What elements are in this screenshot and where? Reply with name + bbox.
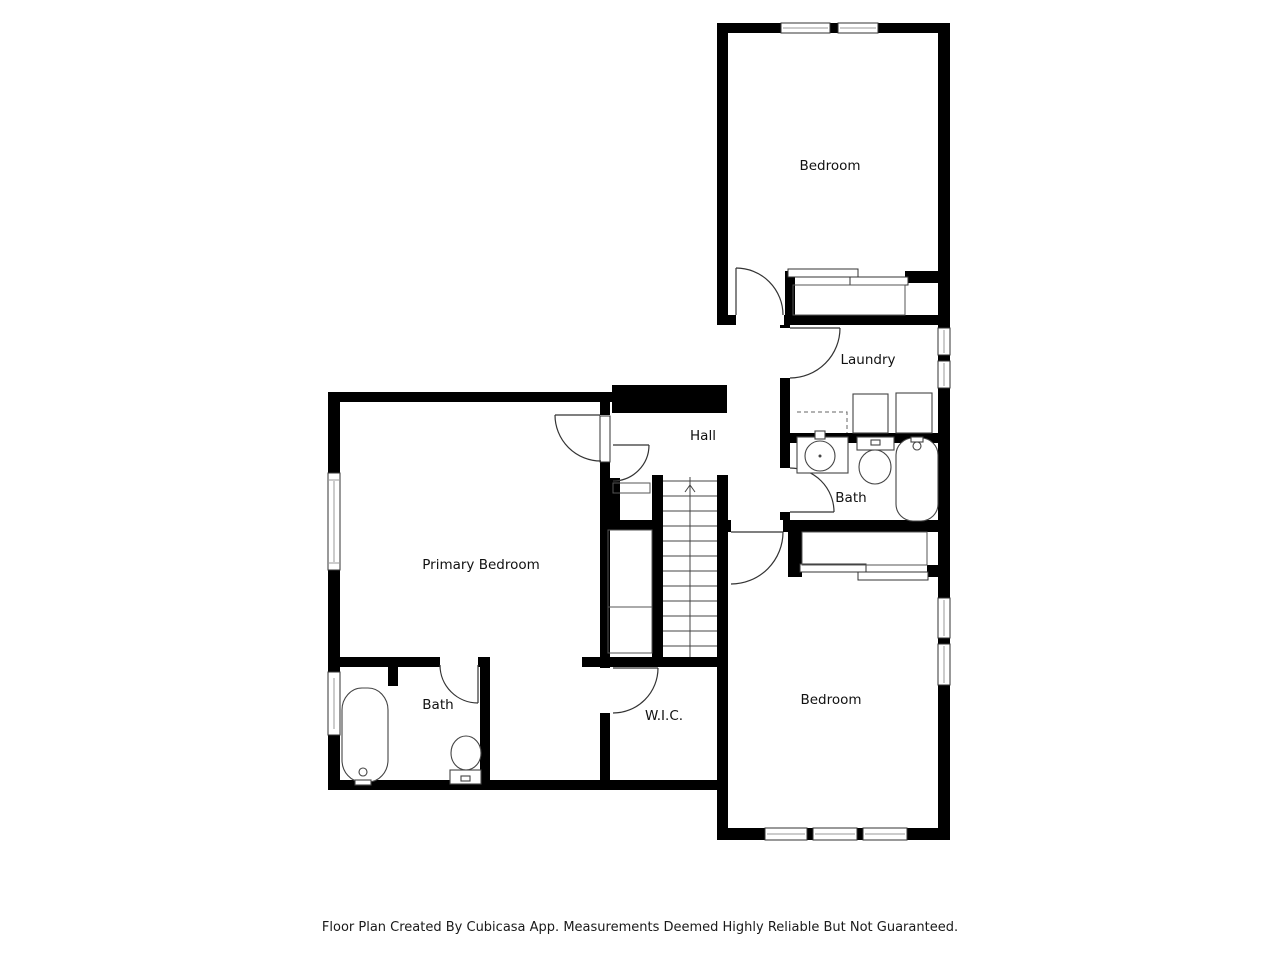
wall-stairs-left (652, 475, 663, 657)
opening-laundry-door (780, 328, 790, 378)
sliding-door-bedroom1-closet-a (788, 269, 858, 277)
floor-plan-canvas: Bedroom Laundry Hall Bath Primary Bedroo… (0, 0, 1280, 960)
room-label-primary-bedroom: Primary Bedroom (422, 557, 540, 573)
window-bedroom2-bottom (765, 828, 907, 840)
wall-bedroom1-left (717, 23, 728, 325)
sliding-door-bedroom1-closet-b (850, 277, 908, 285)
sink-right (797, 431, 848, 473)
sliding-door-bedroom2-closet-b (858, 572, 928, 580)
wall-bedroom2-closet-stub-right (927, 565, 938, 577)
floor-plan-page: Bedroom Laundry Hall Bath Primary Bedroo… (0, 0, 1280, 960)
wall-top-left-block (328, 392, 612, 402)
bathtub-right (896, 437, 938, 521)
wall-hall-closet-bottom (605, 520, 652, 530)
wall-right-exterior (938, 23, 950, 840)
room-label-bath-left: Bath (422, 697, 453, 713)
window-primary-left (328, 473, 340, 570)
opening-bath-left-door (440, 657, 478, 667)
wall-hall-top-block (612, 385, 727, 413)
toilet-left (450, 736, 481, 784)
opening-bedroom2-door (731, 520, 783, 532)
toilet-right (857, 437, 894, 484)
bathtub-left (342, 688, 388, 785)
room-label-bedroom-bottom: Bedroom (800, 692, 861, 708)
dryer (896, 393, 932, 433)
opening-bath-right-door (780, 468, 790, 512)
room-label-bedroom-top: Bedroom (799, 158, 860, 174)
room-label-wic: W.I.C. (645, 708, 683, 724)
footer-disclaimer: Floor Plan Created By Cubicasa App. Meas… (322, 920, 958, 935)
window-bedroom1-top (781, 23, 878, 33)
wall-bedroom1-closet-stub-right (905, 271, 938, 283)
opening-wic-door (600, 668, 610, 713)
wall-top-right-column (717, 23, 950, 33)
window-bath-left (328, 672, 340, 735)
opening-bedroom1-door (736, 315, 784, 325)
background (0, 0, 1280, 960)
wall-bottom-left-block (328, 780, 728, 790)
room-label-hall: Hall (690, 428, 716, 444)
room-label-bath-right: Bath (835, 490, 866, 506)
room-label-laundry: Laundry (840, 352, 895, 368)
washer (853, 394, 888, 433)
wall-tub-partition-stub (388, 657, 398, 686)
